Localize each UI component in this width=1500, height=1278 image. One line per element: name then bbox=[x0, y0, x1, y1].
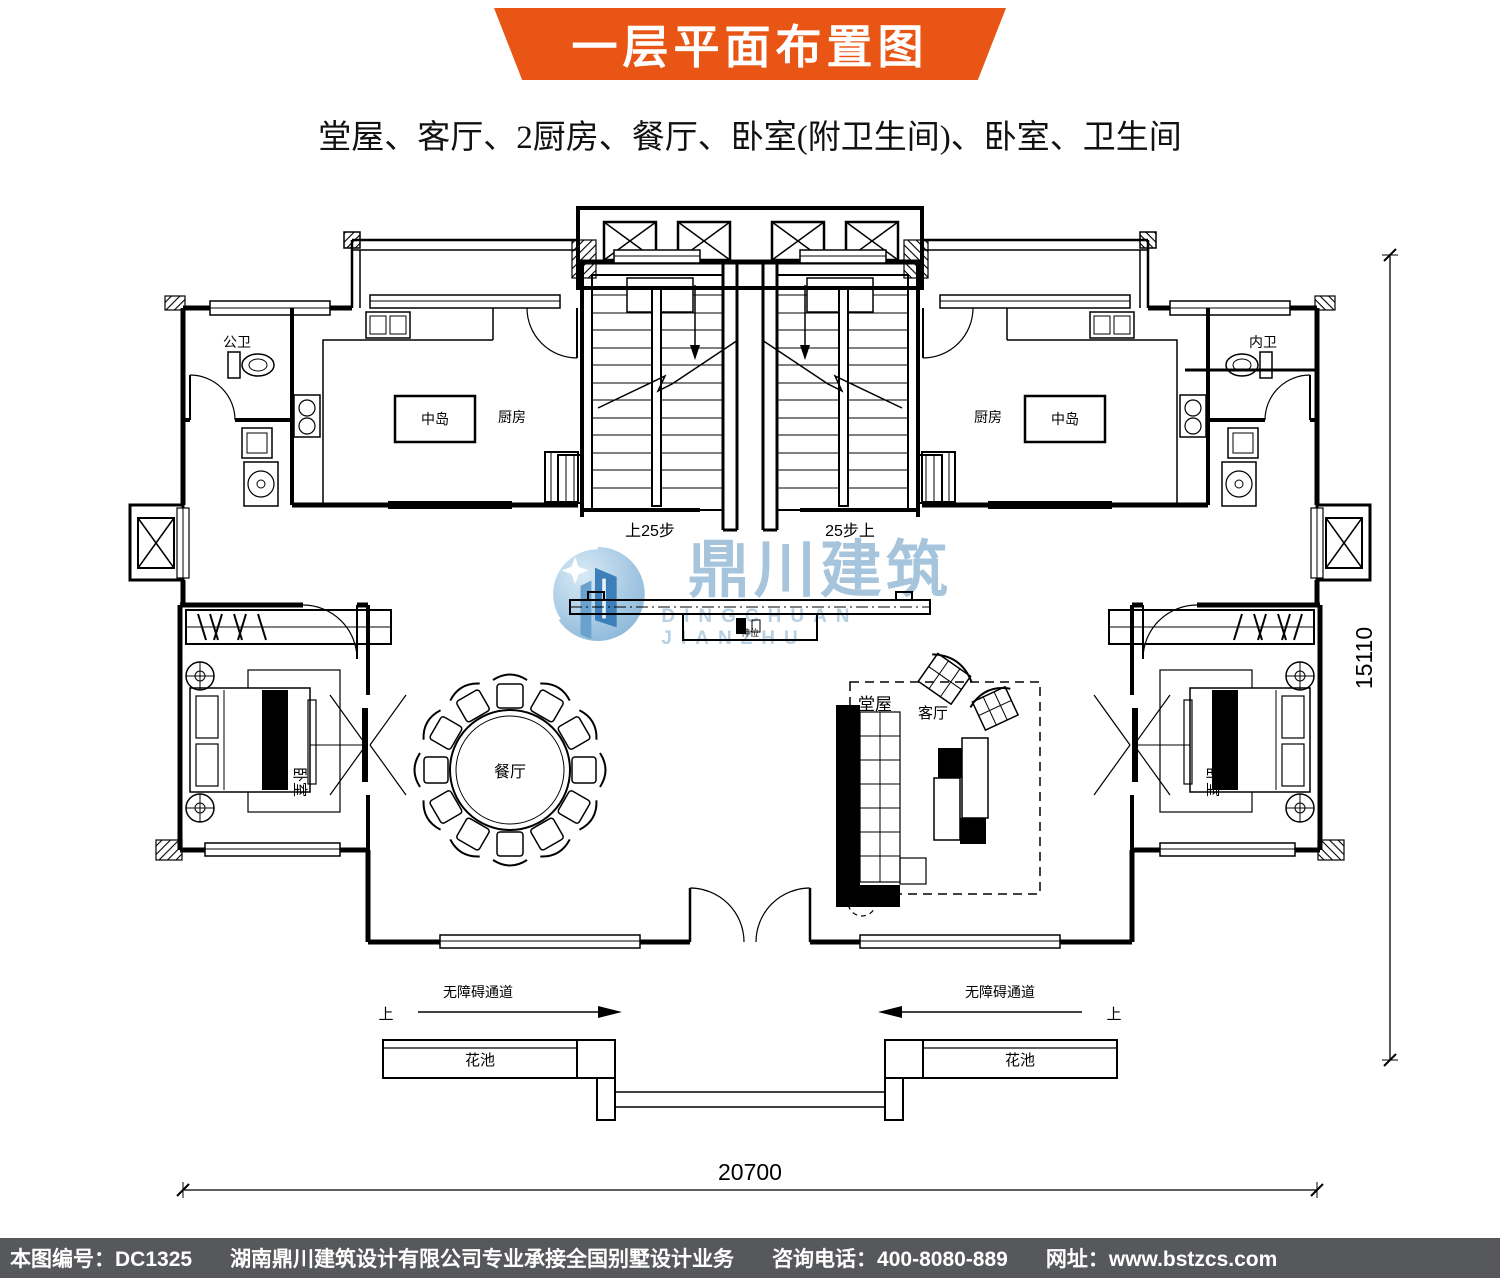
half-plan-structure bbox=[130, 232, 750, 1120]
label-kitchen-right: 厨房 bbox=[974, 409, 1002, 425]
footer-company: 湖南鼎川建筑设计有限公司专业承接全国别墅设计业务 bbox=[230, 1243, 734, 1273]
page-subtitle: 堂屋、客厅、2厨房、餐厅、卧室(附卫生间)、卧室、卫生间 bbox=[0, 110, 1500, 158]
label-bedroom-left: 卧室 bbox=[291, 767, 308, 797]
label-flowerbed-left: 花池 bbox=[465, 1052, 495, 1069]
label-up-right: 上 bbox=[1106, 1006, 1121, 1023]
title-banner: 一层平面布置图 bbox=[494, 8, 1006, 80]
footer-website: 网址：www.bstzcs.com bbox=[1046, 1243, 1277, 1273]
footer-phone: 咨询电话：400-8080-889 bbox=[772, 1243, 1008, 1273]
living-room-set bbox=[836, 648, 1040, 916]
label-inner-bath: 内卫 bbox=[1249, 334, 1277, 350]
footer-bar: 本图编号：DC1325 湖南鼎川建筑设计有限公司专业承接全国别墅设计业务 咨询电… bbox=[0, 1238, 1500, 1278]
label-hall: 堂屋 bbox=[858, 695, 892, 714]
dim-bottom: 20700 bbox=[718, 1159, 782, 1185]
label-up-left: 上 bbox=[378, 1006, 393, 1023]
dim-right: 15110 bbox=[1351, 627, 1377, 689]
label-kitchen-left: 厨房 bbox=[498, 409, 526, 425]
label-stair-right: 25步上 bbox=[825, 522, 875, 540]
label-flowerbed-right: 花池 bbox=[1005, 1052, 1035, 1069]
label-bedroom-right: 卧室 bbox=[1204, 767, 1221, 797]
label-altar: 神位 bbox=[741, 627, 759, 638]
label-ramp-left: 无障碍通道 bbox=[443, 984, 513, 1000]
label-island-right: 中岛 bbox=[1051, 411, 1079, 427]
page-title: 一层平面布置图 bbox=[572, 11, 929, 77]
floor-plan-drawing: 公卫 内卫 中岛 厨房 中岛 厨房 上25步 25步上 卧室 卧室 餐厅 堂屋 … bbox=[0, 0, 1500, 1278]
label-dining: 餐厅 bbox=[494, 763, 526, 781]
footer-sheet-no: 本图编号：DC1325 bbox=[10, 1243, 192, 1273]
label-stair-left: 上25步 bbox=[625, 522, 675, 540]
label-island-left: 中岛 bbox=[421, 411, 449, 427]
label-public-bath: 公卫 bbox=[223, 334, 251, 350]
label-living: 客厅 bbox=[918, 705, 948, 722]
label-ramp-right: 无障碍通道 bbox=[965, 984, 1035, 1000]
